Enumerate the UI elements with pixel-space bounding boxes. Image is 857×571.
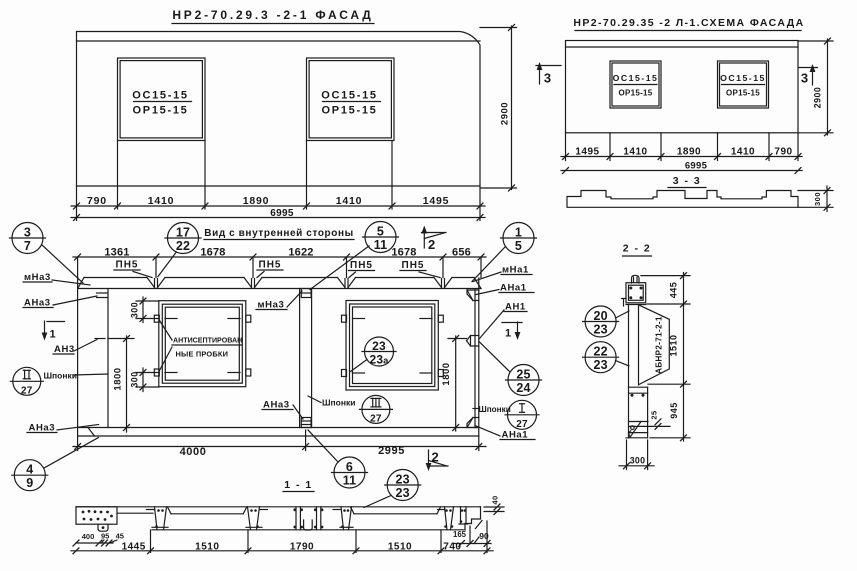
svg-text:1: 1 (515, 226, 522, 240)
svg-text:мНа3: мНа3 (258, 300, 285, 311)
svg-text:27: 27 (21, 385, 33, 396)
svg-text:АНа3: АНа3 (263, 400, 290, 411)
svg-text:24: 24 (516, 381, 530, 395)
svg-text:Шпонки: Шпонки (322, 398, 355, 408)
svg-text:1410: 1410 (148, 195, 175, 207)
svg-text:ОР15-15: ОР15-15 (726, 89, 760, 98)
svg-text:1510: 1510 (388, 541, 412, 552)
svg-text:1445: 1445 (122, 541, 146, 552)
svg-text:ПН5: ПН5 (259, 260, 282, 271)
svg-text:ПН5: ПН5 (116, 260, 139, 271)
svg-text:945: 945 (669, 402, 679, 419)
svg-text:ОР15-15: ОР15-15 (322, 105, 378, 117)
svg-text:2900: 2900 (813, 87, 823, 109)
svg-text:2: 2 (428, 237, 435, 252)
svg-text:1890: 1890 (243, 195, 270, 207)
svg-text:2900: 2900 (500, 102, 511, 125)
svg-text:1495: 1495 (575, 147, 599, 158)
svg-text:1410: 1410 (731, 147, 755, 158)
svg-text:1800: 1800 (441, 362, 452, 385)
svg-text:22: 22 (593, 345, 607, 359)
svg-text:25: 25 (516, 368, 530, 382)
svg-text:3: 3 (544, 71, 551, 86)
svg-text:23а: 23а (370, 353, 390, 367)
svg-text:300: 300 (130, 371, 140, 387)
svg-text:300: 300 (630, 456, 646, 466)
svg-text:23: 23 (396, 473, 410, 487)
svg-text:6995: 6995 (685, 161, 708, 172)
svg-text:Шпонки: Шпонки (479, 405, 511, 414)
svg-text:АБНР2-71-2-1: АБНР2-71-2-1 (655, 316, 664, 374)
svg-text:НР2-70.29.35 -2 Л-1.СХЕМА ФАСА: НР2-70.29.35 -2 Л-1.СХЕМА ФАСАДА (573, 17, 804, 29)
svg-text:НЫЕ ПРОБКИ: НЫЕ ПРОБКИ (176, 350, 229, 359)
svg-text:445: 445 (669, 282, 679, 299)
svg-text:95: 95 (101, 532, 109, 541)
svg-text:ОС15-15: ОС15-15 (321, 90, 378, 102)
svg-text:1678: 1678 (200, 246, 225, 258)
svg-text:мНа3: мНа3 (24, 272, 51, 283)
svg-text:790: 790 (87, 195, 107, 207)
svg-text:9: 9 (26, 476, 33, 490)
svg-text:300: 300 (813, 192, 822, 206)
svg-text:20: 20 (593, 309, 607, 323)
svg-text:2995: 2995 (378, 445, 405, 457)
svg-text:1410: 1410 (623, 147, 647, 158)
svg-text:3: 3 (24, 226, 31, 240)
svg-text:1622: 1622 (288, 246, 313, 258)
svg-text:23: 23 (396, 486, 410, 500)
svg-text:3 - 3: 3 - 3 (673, 175, 702, 187)
svg-text:мНа1: мНа1 (502, 265, 529, 276)
svg-text:2: 2 (432, 450, 439, 465)
svg-text:45: 45 (116, 532, 124, 541)
svg-text:ОС15-15: ОС15-15 (613, 73, 659, 83)
svg-text:6: 6 (346, 460, 353, 474)
svg-text:1495: 1495 (423, 195, 450, 207)
svg-text:1361: 1361 (104, 246, 129, 258)
svg-text:2 - 2: 2 - 2 (623, 243, 652, 255)
svg-text:1790: 1790 (290, 541, 314, 552)
svg-text:АНа3: АНа3 (29, 423, 56, 434)
svg-text:1510: 1510 (669, 334, 679, 356)
svg-text:90: 90 (479, 531, 489, 541)
svg-text:400: 400 (82, 532, 95, 541)
svg-text:ПН5: ПН5 (350, 260, 373, 271)
svg-text:ОС15-15: ОС15-15 (720, 73, 766, 83)
svg-text:23: 23 (372, 339, 386, 353)
svg-text:1678: 1678 (391, 246, 416, 258)
svg-text:ОР15-15: ОР15-15 (133, 105, 189, 117)
svg-text:5: 5 (515, 239, 522, 253)
svg-text:6995: 6995 (270, 208, 294, 219)
svg-text:25: 25 (650, 410, 659, 419)
svg-text:23: 23 (593, 358, 607, 372)
svg-text:АНа1: АНа1 (500, 283, 527, 294)
svg-text:4: 4 (26, 463, 33, 477)
svg-text:4000: 4000 (180, 446, 207, 458)
svg-text:1890: 1890 (677, 147, 701, 158)
svg-text:Шпонки: Шпонки (44, 371, 77, 381)
svg-text:АН3: АН3 (54, 344, 75, 355)
svg-text:АНТИСЕПТИРОВАН: АНТИСЕПТИРОВАН (173, 337, 242, 345)
svg-text:40: 40 (491, 495, 500, 504)
svg-text:790: 790 (774, 147, 792, 158)
svg-text:ОР15-15: ОР15-15 (618, 89, 652, 98)
svg-text:27: 27 (516, 419, 528, 430)
svg-text:ОС15-15: ОС15-15 (132, 90, 189, 102)
svg-text:300: 300 (130, 302, 140, 318)
svg-text:1 - 1: 1 - 1 (284, 479, 313, 491)
svg-text:1: 1 (505, 328, 511, 340)
svg-text:ПН5: ПН5 (402, 260, 425, 271)
svg-text:1: 1 (49, 329, 55, 341)
svg-text:11: 11 (374, 238, 388, 252)
svg-text:АН1: АН1 (505, 302, 526, 313)
svg-text:17: 17 (176, 226, 190, 240)
svg-text:5: 5 (377, 225, 384, 239)
svg-text:23: 23 (593, 323, 607, 337)
svg-text:1410: 1410 (336, 195, 363, 207)
svg-text:АНа3: АНа3 (24, 298, 51, 309)
svg-text:656: 656 (452, 246, 471, 258)
svg-text:3: 3 (801, 71, 808, 86)
svg-text:1800: 1800 (113, 367, 124, 390)
svg-text:22: 22 (176, 239, 190, 253)
svg-text:165: 165 (453, 530, 467, 539)
svg-text:11: 11 (343, 474, 357, 488)
svg-text:Вид с внутренней стороны: Вид с внутренней стороны (204, 228, 353, 239)
svg-text:АНа1: АНа1 (502, 430, 529, 441)
svg-text:27: 27 (370, 413, 382, 424)
svg-text:7: 7 (24, 239, 31, 253)
svg-text:1510: 1510 (195, 541, 219, 552)
svg-text:НР2-70.29.3 -2-1 ФАСАД: НР2-70.29.3 -2-1 ФАСАД (172, 8, 373, 22)
